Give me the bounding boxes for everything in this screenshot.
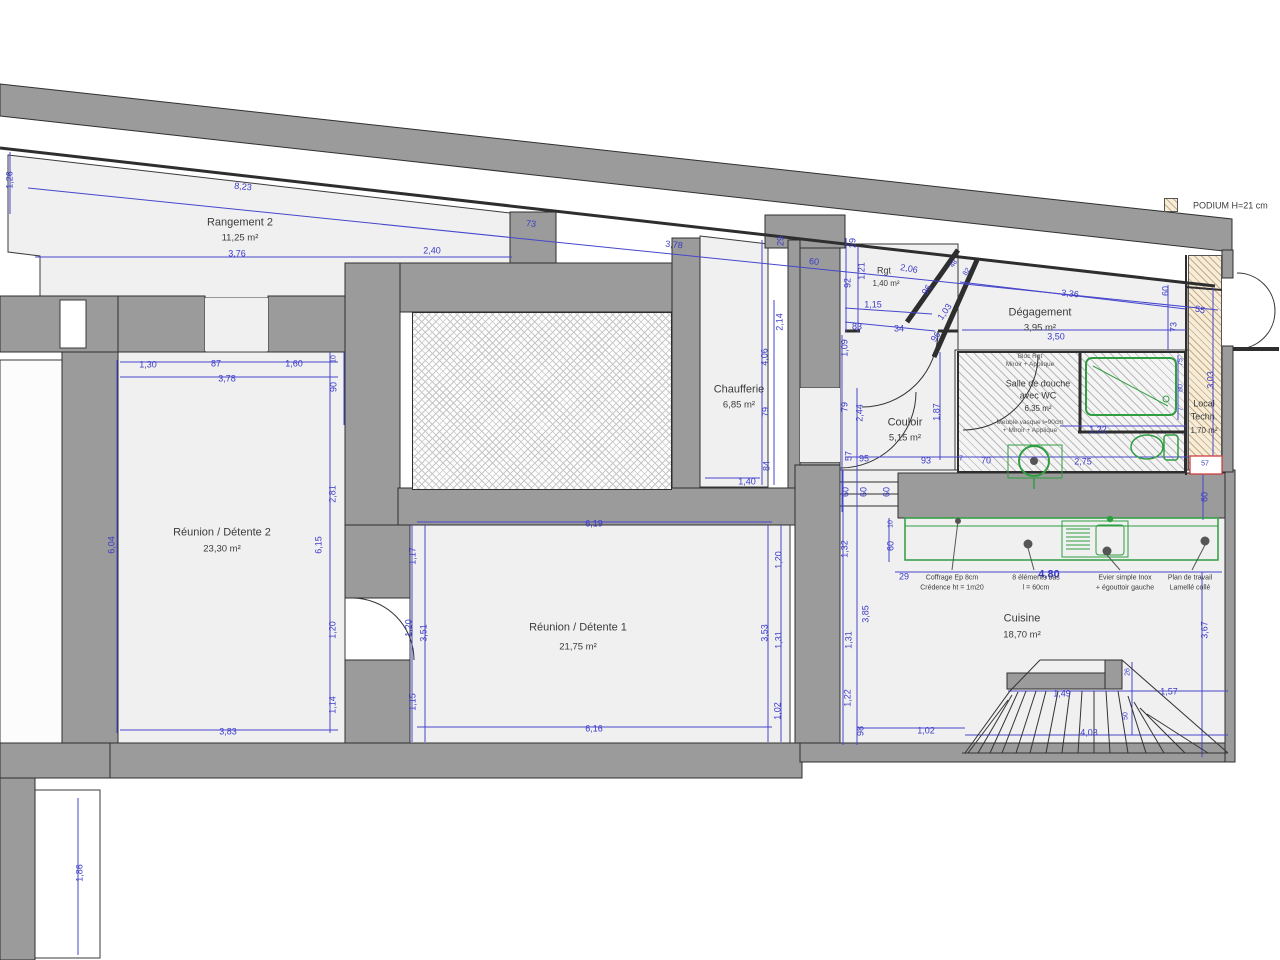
note-vasque-2: + Miroir + Applique [1003,428,1057,435]
note-evier: Evier simple Inox [1098,575,1151,582]
dim-label: 1,17 [409,547,418,565]
door-arc-rgt [862,331,938,407]
dim-label: 1,87 [933,403,942,421]
dim-label: 60 [883,487,892,497]
dim-label: 1,21 [858,262,867,280]
room-area-chaufferie: 6,85 m² [723,400,755,410]
room-label-rangement-2: Rangement 2 [207,218,273,229]
dim-label: 2,75 [1074,458,1092,467]
room-area-cuisine: 18,70 m² [1003,630,1041,640]
dim-label: 29 [899,573,909,582]
floor-plan: 1,26 8,23 73 3,78 3,76 2,40 29 2,14 60 2… [0,0,1280,960]
dimension-lines [10,152,1228,955]
dim-label: 6,04 [108,536,117,554]
dim-label: 98 [857,726,866,736]
note-bloc-rgt-2: Miroir + Applique [1006,362,1055,369]
dim-label: 2,14 [776,313,785,331]
dim-label: 3,53 [761,624,770,642]
thin-walls [0,148,1279,506]
dim-label: 60 [1201,492,1210,502]
dim-label: 26 [1125,668,1132,676]
dim-label: 57 [845,451,854,461]
dim-label: 29 [777,236,786,246]
dim-label: 1,22 [844,689,853,707]
dim-label: 60 [860,487,869,497]
dim-label: 83 [852,323,862,332]
dim-label: 1,14 [329,696,338,714]
dim-label: 7 [959,456,963,463]
tap-icon [1108,517,1113,522]
room-area-rangement-2: 11,25 m² [222,233,259,243]
dim-label: 3,36 [1061,289,1079,300]
dim-label: 3,78 [665,240,683,251]
dim-label: 73 [1170,322,1179,332]
dim-label: 75 [1178,358,1185,366]
shower-drain-icon [1163,396,1169,402]
dim-label: 57 [1201,461,1209,468]
dim-label: 4,06 [761,348,770,366]
dim-label: 2,81 [329,485,338,503]
dim-label: 92 [844,278,853,288]
dim-label: 6,16 [585,725,603,734]
room-label-chaufferie: Chaufferie [714,385,765,396]
dim-label: 50 [1123,712,1130,720]
dim-label: 60 [887,541,896,551]
room-label-couloir: Couloir [888,418,923,429]
dim-label: 90 [330,382,339,392]
dim-label: 60 [1162,286,1171,296]
dim-label: 4,03 [1080,729,1098,738]
dim-label: 29 [849,238,858,248]
room-area-rgt: 1,40 m² [872,280,899,288]
door-arc-entrance [1237,273,1275,349]
room-label-salle-de-douche-2: avec WC [1020,392,1057,401]
note-elements-bas: 8 éléments bas [1012,575,1059,582]
dim-label: 10 [331,355,338,363]
dim-label: 6,15 [315,536,324,554]
dim-label: 1,02 [774,702,783,720]
room-label-local-techn-2: Techn. [1191,413,1218,422]
room-area-reunion-detente-2: 23,30 m² [203,544,241,554]
dim-label: 1,31 [845,631,854,649]
dim-label: 1,09 [841,339,850,357]
dim-label: 1,49 [1053,690,1071,699]
dim-label: 2,40 [423,247,441,256]
dim-label: 6,19 [585,520,603,529]
dim-label: 93 [921,457,931,466]
dim-label: 1,60 [285,360,303,369]
door-arcs [352,273,1275,660]
dim-label: 10 [888,520,895,528]
note-plan-travail-2: Lamellé collé [1170,585,1211,592]
room-area-reunion-detente-1: 21,75 m² [559,642,597,652]
dim-label: 3,83 [219,728,237,737]
dim-label: 60 [842,487,851,497]
note-plan-travail: Plan de travail [1168,575,1212,582]
dim-label: 8,23 [234,182,252,193]
dim-label: 3,51 [420,624,429,642]
room-label-salle-de-douche: Salle de douche [1006,380,1071,389]
dim-label: 95 [859,455,869,464]
dim-label: 1,86 [76,864,85,882]
note-elements-bas-2: l = 60cm [1023,585,1050,592]
drainboard-icon [1066,529,1090,549]
dim-label: 1,20 [775,551,784,569]
detail-overlay-layer [0,0,1280,960]
dim-label: 84 [763,461,772,471]
dim-label: 70 [981,457,991,466]
dim-label: 3,50 [1047,333,1065,342]
dim-label: 73 [526,219,537,229]
dim-label: 34 [894,325,904,334]
dim-label: 1,30 [139,361,157,370]
note-coffrage: Coffrage Ep 8cm [926,575,978,582]
dim-label: 1,22 [1089,426,1107,435]
dim-label: 1,02 [917,727,935,736]
dim-label: 80 [1178,384,1185,392]
room-label-cuisine: Cuisine [1004,614,1041,625]
toilet-tank-icon [1164,435,1178,460]
dim-label: 2,44 [856,404,865,422]
room-label-rgt: Rgt [877,267,891,276]
dim-label: 1,40 [738,478,756,487]
dim-label: 55 [1194,305,1206,316]
room-area-local-techn: 1,70 m² [1190,427,1217,435]
room-area-couloir: 5,15 m² [889,433,921,443]
room-label-degagement: Dégagement [1009,308,1072,319]
dim-label: 1,57 [1160,688,1178,697]
room-area-salle-de-douche: 6,35 m² [1024,405,1051,413]
dim-label: 1,26 [6,171,15,189]
note-vasque: Meuble vasque l=90cm [996,420,1063,427]
dim-label: 1,15 [409,693,418,711]
room-label-reunion-detente-2: Réunion / Détente 2 [173,528,271,539]
dim-label: 87 [211,360,221,369]
note-evier-2: + égouttoir gauche [1096,585,1154,592]
dim-label: 3,78 [218,375,236,384]
dim-label: 3,85 [862,605,871,623]
dim-label: 1,15 [864,301,882,310]
staircase [962,660,1228,753]
room-area-degagement: 3,95 m² [1024,323,1056,333]
dim-label: 1,32 [841,540,850,558]
dim-label: 3,76 [228,250,246,259]
dim-label: 1,20 [329,621,338,639]
dim-label: 79 [841,402,850,412]
dim-label: 7 [1178,407,1185,411]
legend-podium-label: PODIUM H=21 cm [1193,202,1268,211]
dim-label: 1,20 [405,619,414,637]
dim-label: 3,03 [1207,371,1216,389]
note-bloc-rgt: Bloc Rgt [1018,354,1043,361]
dim-label: 60 [809,257,820,267]
room-label-local-techn: Local [1193,400,1215,409]
room-label-reunion-detente-1: Réunion / Détente 1 [529,623,627,634]
dim-label: 79 [762,407,771,417]
note-coffrage-2: Crédence ht = 1m20 [920,585,984,592]
toilet-bowl-icon [1131,435,1163,459]
dim-label: 3,67 [1201,621,1210,639]
dim-label: 1,31 [775,631,784,649]
